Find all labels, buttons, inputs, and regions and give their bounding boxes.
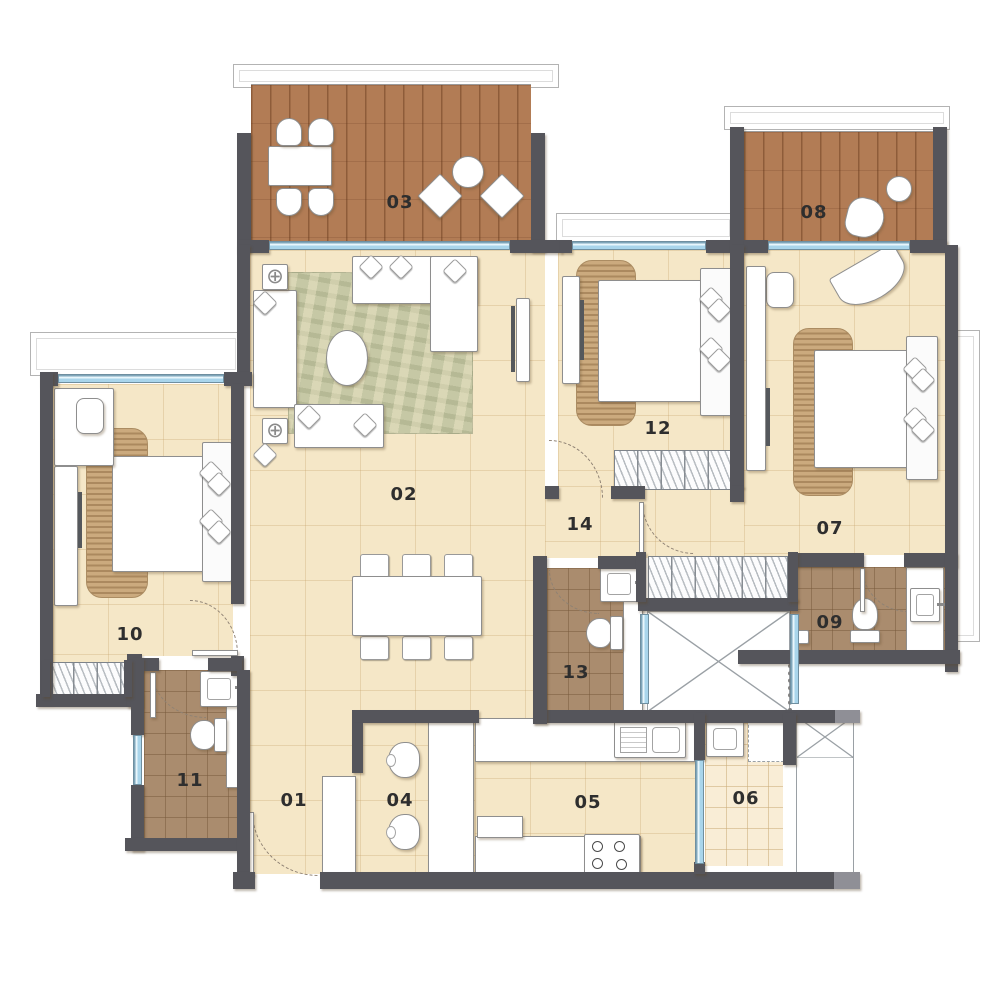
sink-drainboard xyxy=(620,727,647,753)
glass-kitchen-utility xyxy=(695,760,704,864)
stool-back xyxy=(386,826,396,839)
room-label-living-deck: 03 xyxy=(378,192,422,213)
wardrobe-bedroom-left xyxy=(50,662,128,696)
tv-unit-bedroom-middle xyxy=(562,276,580,384)
dining-chair xyxy=(444,554,473,578)
door-leaf-passage xyxy=(639,502,644,554)
deck-chair xyxy=(308,118,334,146)
wardrobe-bedroom-middle xyxy=(614,450,734,490)
basin-bowl xyxy=(916,594,934,616)
tv-unit-living xyxy=(516,298,530,382)
foyer-cabinet xyxy=(322,776,356,875)
deck-chair xyxy=(308,188,334,216)
dining-chair xyxy=(402,636,431,660)
toilet-tank xyxy=(850,630,880,643)
window-bedroom-middle xyxy=(572,241,706,250)
room-label-passage: 14 xyxy=(558,514,602,535)
wall xyxy=(352,710,479,723)
coffee-table xyxy=(326,330,368,386)
room-label-entry: 01 xyxy=(272,790,316,811)
burner-icon xyxy=(616,859,627,870)
tv-bedroom-middle xyxy=(580,300,584,360)
toilet-bowl-icon xyxy=(852,598,878,630)
door-leaf-bath-right xyxy=(860,568,865,612)
toilet-tank xyxy=(610,616,623,650)
corner-table: ⊕ xyxy=(262,418,288,444)
bed-mattress xyxy=(112,456,204,572)
dining-chair xyxy=(444,636,473,660)
glass-shaft-left xyxy=(640,614,649,704)
window-bedroom-left xyxy=(58,374,224,383)
wall xyxy=(744,240,768,253)
deck-chair xyxy=(276,118,302,146)
wall xyxy=(910,240,947,253)
dining-table xyxy=(352,576,482,636)
wall xyxy=(783,713,796,765)
washing-machine-slot xyxy=(748,720,784,762)
wall xyxy=(730,486,744,502)
wall xyxy=(533,556,547,724)
washbasin-icon xyxy=(910,588,940,622)
desk-chair xyxy=(766,272,794,308)
wall xyxy=(560,240,572,253)
wall xyxy=(611,486,645,499)
wall xyxy=(945,245,958,672)
dining-chair xyxy=(360,554,389,578)
basin-bowl xyxy=(607,573,631,595)
wall xyxy=(352,723,363,773)
dining-chair xyxy=(402,554,431,578)
wall xyxy=(835,710,860,723)
wardrobe-end-cap xyxy=(42,660,50,697)
console-bedroom-left xyxy=(54,466,78,606)
room-label-bedroom-deck: 08 xyxy=(792,202,836,223)
bed-mattress xyxy=(814,350,908,468)
burner-icon xyxy=(614,841,625,852)
burner-icon xyxy=(592,841,603,852)
glass-shaft-right xyxy=(790,614,799,704)
basin-bowl xyxy=(207,678,231,700)
washbasin-icon xyxy=(600,566,638,602)
room-label-bath-right: 09 xyxy=(808,612,852,633)
stool xyxy=(388,814,420,850)
toilet-bowl-icon xyxy=(190,720,216,750)
door-leaf-bath-left xyxy=(150,672,156,718)
room-label-utility: 06 xyxy=(724,788,768,809)
tv-bedroom-right xyxy=(766,388,770,446)
bed-headboard xyxy=(906,336,938,480)
room-label-bath-left: 11 xyxy=(168,770,212,791)
desk-chair xyxy=(76,398,104,434)
wall xyxy=(790,553,864,567)
wall xyxy=(730,127,744,245)
room-label-bath-middle: 13 xyxy=(554,662,598,683)
room-label-bedroom-middle: 12 xyxy=(636,418,680,439)
wall xyxy=(638,598,798,611)
wall xyxy=(694,713,705,760)
wall xyxy=(834,872,860,889)
tv-living xyxy=(511,306,515,372)
ledge-above-bedroom-left xyxy=(30,332,242,376)
wall xyxy=(320,872,834,889)
wardrobe-end-cap xyxy=(124,660,132,697)
window-living-deck xyxy=(269,241,510,250)
washbasin-icon xyxy=(200,671,238,707)
stool-back xyxy=(386,754,396,767)
window-bedroom-deck xyxy=(768,241,910,250)
utility-sink-icon xyxy=(706,721,744,757)
deck-side-table xyxy=(886,176,912,202)
window-bath-left xyxy=(133,735,142,785)
toilet-bowl-icon xyxy=(586,618,612,648)
room-label-bedroom-left: 10 xyxy=(108,624,152,645)
sink-bowl xyxy=(652,727,680,753)
breakfast-counter xyxy=(428,720,474,874)
wall xyxy=(237,245,250,381)
hob-icon xyxy=(584,834,640,876)
wall xyxy=(131,658,144,735)
console-bedroom-right xyxy=(746,266,766,471)
wall xyxy=(237,133,251,252)
bed-mattress xyxy=(598,280,702,402)
wardrobe-passage xyxy=(648,556,788,600)
tv-bedroom-left xyxy=(78,492,82,548)
wardrobe-end-cap xyxy=(788,552,798,602)
wall xyxy=(510,240,562,253)
room-label-kitchen: 05 xyxy=(566,792,610,813)
terrace-ledge-top-right xyxy=(724,106,950,130)
wall xyxy=(545,486,559,499)
wall xyxy=(125,838,245,851)
wall xyxy=(233,872,255,889)
kitchen-appliance xyxy=(477,816,523,838)
wall xyxy=(40,372,53,704)
wall xyxy=(738,650,960,664)
dining-chair xyxy=(360,636,389,660)
room-label-breakfast: 04 xyxy=(378,790,422,811)
toilet-tank xyxy=(214,718,227,752)
deck-chair xyxy=(276,188,302,216)
floor-plan: ⊕ ⊕ xyxy=(0,0,1000,1000)
burner-icon xyxy=(592,858,603,869)
deck-round-table xyxy=(452,156,484,188)
room-label-bedroom-right: 07 xyxy=(808,518,852,539)
room-label-living: 02 xyxy=(382,484,426,505)
wall xyxy=(933,127,947,245)
deck-dining-table xyxy=(268,146,332,186)
corner-table: ⊕ xyxy=(262,264,288,290)
wall xyxy=(531,133,545,252)
stool xyxy=(388,742,420,778)
wall xyxy=(231,384,244,604)
wardrobe-end-cap xyxy=(636,552,646,602)
sink-bowl xyxy=(713,728,737,750)
wall xyxy=(730,245,744,488)
ledge-above-bedroom-middle xyxy=(556,213,736,243)
wall xyxy=(237,670,250,882)
kitchen-sink-icon xyxy=(614,721,686,758)
